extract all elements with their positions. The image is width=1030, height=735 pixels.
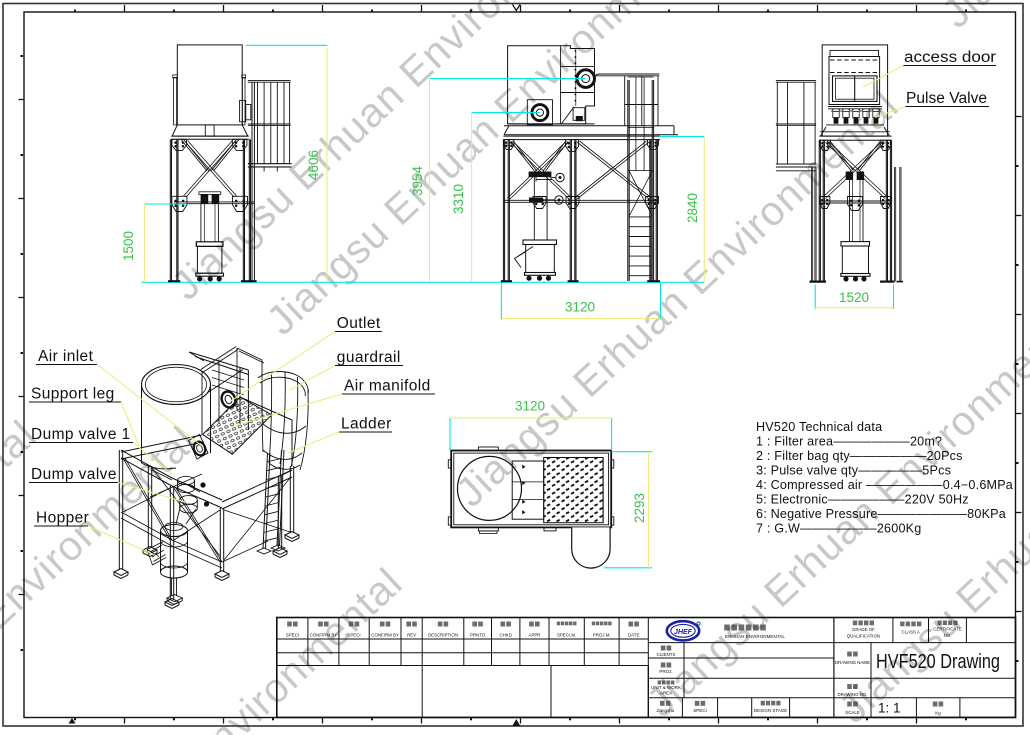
svg-text:Jiangshu: Jiangshu: [656, 708, 675, 713]
svg-text:access door: access door: [904, 49, 996, 66]
svg-text:Ladder: Ladder: [341, 416, 392, 433]
svg-text:PROJ.M.: PROJ.M.: [593, 633, 611, 638]
svg-text:REV: REV: [407, 633, 416, 638]
svg-text:CONFIRM BY: CONFIRM BY: [371, 633, 399, 638]
svg-text:2840: 2840: [685, 193, 700, 223]
svg-text:AREA: AREA: [660, 691, 672, 696]
svg-text:guardrail: guardrail: [337, 349, 401, 366]
svg-text:1 : Filter area——————20m?: 1 : Filter area——————20m?: [756, 435, 942, 449]
svg-text:ERHUAN ENVIRONMENTAL: ERHUAN ENVIRONMENTAL: [725, 634, 785, 639]
svg-text:2 : Filter bag qty——————20Pcs: 2 : Filter bag qty——————20Pcs: [756, 449, 963, 463]
svg-text:SPECI: SPECI: [347, 633, 360, 638]
svg-text:6: Negative Pressure———————80: 6: Negative Pressure———————80KPa: [756, 507, 1006, 521]
svg-text:Pulse Valve: Pulse Valve: [906, 90, 987, 107]
svg-text:SPECI: SPECI: [693, 708, 707, 713]
svg-text:1500: 1500: [121, 231, 136, 261]
svg-text:PRNTD: PRNTD: [470, 633, 485, 638]
svg-text:1: 1: 1: 1: [878, 701, 901, 716]
svg-text:5: Electronic——————220V 50Hz: 5: Electronic——————220V 50Hz: [756, 493, 969, 507]
svg-text:HVF520 Drawing: HVF520 Drawing: [876, 651, 1000, 673]
svg-text:CERTIFICATE: CERTIFICATE: [933, 627, 961, 632]
svg-text:Dump valve: Dump valve: [31, 466, 117, 483]
svg-text:4606: 4606: [306, 150, 321, 180]
svg-text:APPR: APPR: [529, 633, 541, 638]
svg-text:HV520 Technical data: HV520 Technical data: [756, 420, 882, 434]
svg-text:DRAWING NO.: DRAWING NO.: [837, 692, 867, 697]
svg-text:DRAWING NAME: DRAWING NAME: [835, 660, 870, 665]
svg-text:3: Pulse valve qty—————5Pcs: 3: Pulse valve qty—————5Pcs: [756, 464, 951, 478]
svg-text:SPECI.M.: SPECI.M.: [557, 633, 576, 638]
svg-text:4: Compressed air ——————0.4−0: 4: Compressed air ——————0.4−0.6MPa: [756, 478, 1013, 492]
svg-text:Hopper: Hopper: [36, 510, 89, 527]
svg-text:CONFIRM BY: CONFIRM BY: [310, 633, 338, 638]
svg-text:PROJ.: PROJ.: [659, 669, 672, 674]
svg-text:3954: 3954: [410, 165, 425, 196]
svg-text:SCALE: SCALE: [845, 710, 859, 715]
svg-text:3120: 3120: [515, 399, 545, 414]
svg-text:3310: 3310: [451, 184, 466, 214]
svg-text:Air manifold: Air manifold: [344, 378, 431, 395]
svg-text:Dump valve 1: Dump valve 1: [31, 426, 131, 443]
svg-text:GRADE OF: GRADE OF: [852, 627, 875, 632]
svg-text:NO.: NO.: [944, 633, 952, 638]
svg-text:2293: 2293: [632, 493, 647, 523]
svg-text:DESIGN STAGE: DESIGN STAGE: [754, 708, 787, 713]
svg-text:Support leg: Support leg: [31, 386, 115, 403]
svg-text:7 : G.W——————2600Kg: 7 : G.W——————2600Kg: [756, 522, 921, 536]
svg-text:Outlet: Outlet: [337, 315, 381, 332]
svg-text:UNIT & WORK: UNIT & WORK: [651, 685, 681, 690]
svg-text:CLASS A: CLASS A: [902, 630, 920, 635]
svg-text:CHKD: CHKD: [499, 633, 511, 638]
svg-text:Kg: Kg: [935, 711, 941, 716]
svg-text:3120: 3120: [565, 300, 595, 315]
svg-text:Air inlet: Air inlet: [38, 348, 94, 365]
svg-text:CLIENTS: CLIENTS: [656, 652, 675, 657]
svg-text:DESCRIPTION: DESCRIPTION: [428, 633, 458, 638]
svg-text:1520: 1520: [839, 290, 869, 305]
svg-text:DATE: DATE: [628, 633, 639, 638]
svg-text:JHEF: JHEF: [674, 629, 693, 636]
svg-text:SPECI: SPECI: [286, 633, 299, 638]
svg-text:QUALIFICATION: QUALIFICATION: [847, 634, 880, 639]
